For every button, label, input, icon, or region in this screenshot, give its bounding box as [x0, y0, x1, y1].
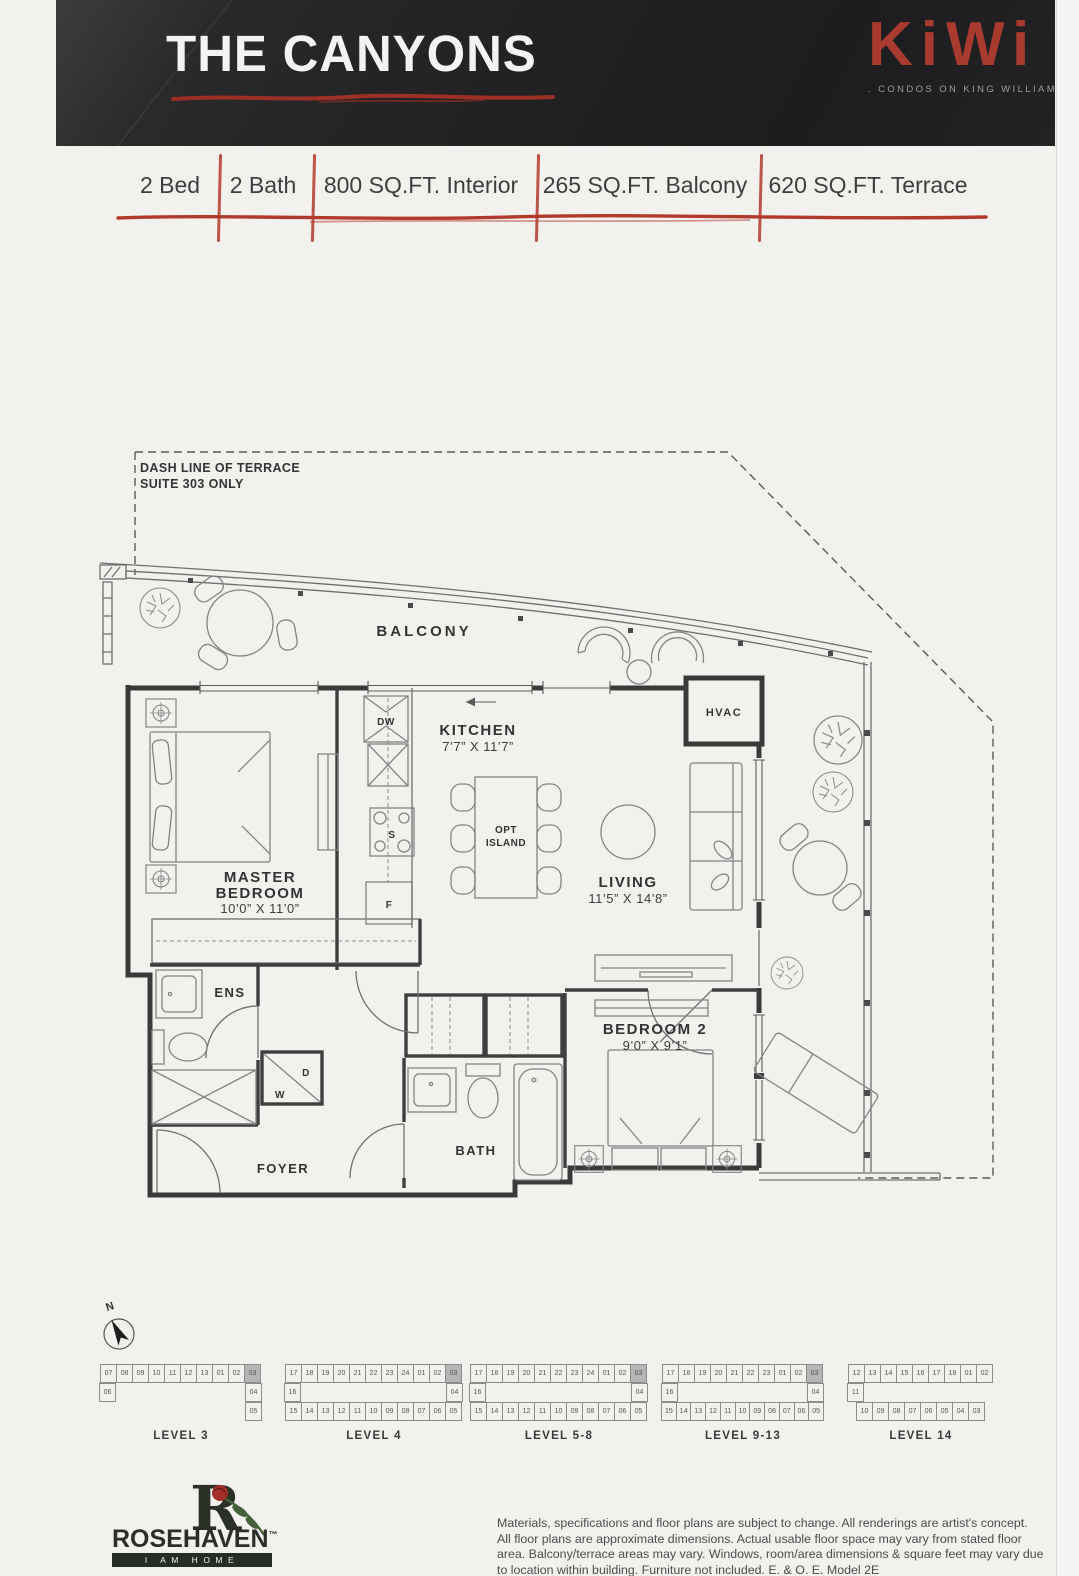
brochure-page: THE CANYONS KiWi . CONDOS ON KING WILLIA… [0, 0, 1079, 1576]
keyplan-unit: 09 [381, 1402, 398, 1421]
keyplan-unit: 15 [470, 1402, 487, 1421]
keyplan-unit: 08 [116, 1364, 133, 1383]
keyplan-unit: 12 [180, 1364, 197, 1383]
keyplan-units: 07080910111213010203060405 [100, 1364, 262, 1421]
keyplan-unit: 01 [413, 1364, 430, 1383]
keyplan-label: LEVEL 4 [285, 1430, 463, 1442]
keyplan-unit: 03 [445, 1364, 462, 1383]
keyplan-unit: 08 [888, 1402, 905, 1421]
keyplan-unit: 16 [284, 1383, 301, 1402]
spec-beds: 2 Bed [140, 172, 200, 199]
keyplan-level-4: 1718192021222324010203160415141312111009… [285, 1364, 463, 1442]
keyplan-unit: 07 [413, 1402, 430, 1421]
keyplan-unit: 05 [445, 1402, 462, 1421]
keyplan-unit: 03 [806, 1364, 823, 1383]
balcony-lounge-chairs [578, 627, 704, 684]
room-label-foyer: FOYER [257, 1161, 309, 1176]
keyplan-unit: 20 [333, 1364, 350, 1383]
keyplan-unit: 02 [228, 1364, 245, 1383]
keyplan-unit: 19 [694, 1364, 711, 1383]
rosehaven-tagline: I AM HOME [112, 1553, 272, 1567]
keyplan-level-5-8: 1718192021222324010203160415141312111009… [470, 1364, 648, 1442]
keyplan-unit: 06 [99, 1383, 116, 1402]
keyplan-unit: 21 [534, 1364, 551, 1383]
keyplan-unit: 12 [333, 1402, 350, 1421]
keyplan-units: 1718192021222324010203160415141312111009… [285, 1364, 463, 1421]
keyplan-unit: 10 [856, 1402, 873, 1421]
keyplan-unit: 22 [742, 1364, 759, 1383]
keyplan-unit: 15 [896, 1364, 913, 1383]
keyplan-unit: 11 [720, 1402, 736, 1421]
keyplan-unit: 13 [864, 1364, 881, 1383]
keyplan-unit: 14 [301, 1402, 318, 1421]
master-bedroom-furniture [150, 732, 338, 862]
room-label-ens: ENS [214, 985, 245, 1000]
keyplan-unit: 02 [614, 1364, 631, 1383]
page-title: THE CANYONS [166, 24, 537, 83]
room-dims-master: 10’0” X 11’0” [220, 901, 299, 916]
keyplan-unit: 09 [566, 1402, 583, 1421]
keyplan-unit: 17 [662, 1364, 679, 1383]
keyplan-unit: 04 [952, 1402, 969, 1421]
keyplan-unit: 01 [212, 1364, 229, 1383]
keyplan-unit: 12 [848, 1364, 865, 1383]
room-dims-living: 11’5” X 14’8” [588, 891, 667, 906]
keyplan-unit: 11 [349, 1402, 366, 1421]
interior-walls [150, 688, 759, 1188]
tree-icon [140, 588, 180, 628]
disclaimer-line: area. Balcony/terrace areas may vary. Wi… [497, 1547, 1057, 1563]
room-label-master2: BEDROOM [216, 885, 305, 902]
room-label-hvac: HVAC [706, 707, 742, 719]
keyplan-unit: 15 [285, 1402, 302, 1421]
keyplan-unit: 13 [196, 1364, 213, 1383]
keyplan-unit: 17 [928, 1364, 945, 1383]
keyplan-unit: 18 [678, 1364, 695, 1383]
disclaimer-line: to location within building. Furniture n… [497, 1563, 1057, 1576]
keyplan-unit: 24 [582, 1364, 599, 1383]
keyplan-unit: 12 [705, 1402, 721, 1421]
keyplan-unit: 24 [397, 1364, 414, 1383]
bath-fixtures [408, 1064, 562, 1180]
keyplan-unit: 05 [936, 1402, 953, 1421]
floor-plan: DASH LINE OF TERRACE SUITE 303 ONLY BALC… [0, 430, 1079, 1262]
header-banner: THE CANYONS KiWi . CONDOS ON KING WILLIA… [56, 0, 1055, 146]
keyplan-unit: 14 [880, 1364, 897, 1383]
keyplan-unit: 04 [245, 1383, 262, 1402]
disclaimer-line: All floor plans are approximate dimensio… [497, 1532, 1057, 1548]
washer-dryer [264, 1054, 320, 1102]
keyplan-unit: 22 [550, 1364, 567, 1383]
keyplan-unit: 09 [749, 1402, 765, 1421]
fridge-label: F [386, 900, 393, 911]
north-arrow: N [92, 1294, 152, 1358]
keyplan-unit: 03 [630, 1364, 647, 1383]
rosehaven-tm: ™ [269, 1530, 278, 1540]
spec-bar: 2 Bed 2 Bath 800 SQ.FT. Interior 265 SQ.… [0, 146, 1079, 256]
keyplan-unit: 11 [164, 1364, 181, 1383]
keyplan-unit: 22 [365, 1364, 382, 1383]
tree-icon [813, 772, 853, 812]
keyplan-unit: 18 [301, 1364, 318, 1383]
keyplan-unit: 10 [550, 1402, 567, 1421]
keyplan-level-3: 07080910111213010203060405 LEVEL 3 [100, 1364, 262, 1442]
north-label: N [104, 1300, 115, 1314]
keyplan-unit: 16 [661, 1383, 678, 1402]
island-label-line2: ISLAND [486, 838, 526, 849]
spec-underline-scribble [110, 206, 1000, 230]
keyplan-unit: 13 [317, 1402, 334, 1421]
keyplan-unit: 11 [847, 1383, 864, 1402]
keyplan-unit: 17 [285, 1364, 302, 1383]
keyplan-unit: 19 [502, 1364, 519, 1383]
keyplan-unit: 08 [582, 1402, 599, 1421]
keyplan-unit: 08 [397, 1402, 414, 1421]
keyplan-unit: 08 [764, 1402, 780, 1421]
nightstand-lamp [146, 865, 176, 893]
scan-edge-strip [1057, 0, 1079, 1576]
keyplan-unit: 14 [676, 1402, 692, 1421]
keyplan-unit: 05 [808, 1402, 824, 1421]
room-label-kitchen: KITCHEN [439, 722, 516, 739]
keyplan-unit: 04 [446, 1383, 463, 1402]
kiwi-tagline: . CONDOS ON KING WILLIAM [868, 84, 1079, 95]
keyplan-units: 121314151617180102111009080706050403 [848, 1364, 994, 1421]
keyplan-label: LEVEL 5-8 [470, 1430, 648, 1442]
keyplan-level-14: 121314151617180102111009080706050403 LEV… [848, 1364, 994, 1442]
living-furniture [595, 763, 742, 981]
keyplan-unit: 03 [244, 1364, 261, 1383]
room-dims-kitchen: 7’7” X 11’7” [442, 739, 514, 754]
keyplan-unit: 01 [598, 1364, 615, 1383]
keyplan-unit: 19 [317, 1364, 334, 1383]
keyplan-unit: 21 [349, 1364, 366, 1383]
terrace-note-line2: SUITE 303 ONLY [140, 477, 244, 491]
keyplan-unit: 01 [960, 1364, 977, 1383]
keyplan-unit: 12 [518, 1402, 535, 1421]
keyplan-unit: 02 [429, 1364, 446, 1383]
keyplan-unit: 05 [630, 1402, 647, 1421]
nightstand-lamp [146, 699, 176, 727]
keyplan-unit: 07 [904, 1402, 921, 1421]
kiwi-logo: KiWi . CONDOS ON KING WILLIAM [868, 12, 1079, 95]
keyplan-unit: 03 [968, 1402, 985, 1421]
disclaimer-line: Materials, specifications and floor plan… [497, 1516, 1057, 1532]
title-underline-scribble [169, 90, 564, 106]
keyplan-unit: 20 [518, 1364, 535, 1383]
room-label-living: LIVING [598, 874, 657, 891]
kiwi-wordmark: KiWi [868, 12, 1079, 78]
keyplan-unit: 07 [598, 1402, 615, 1421]
spec-baths: 2 Bath [230, 172, 297, 199]
keyplan-unit: 15 [661, 1402, 677, 1421]
terrace-note-line1: DASH LINE OF TERRACE [140, 461, 300, 475]
dishwasher-label: DW [377, 717, 395, 728]
keyplan-unit: 05 [245, 1402, 262, 1421]
keyplan-unit: 06 [614, 1402, 631, 1421]
stove-label: S [388, 830, 395, 841]
keyplan-units: 1718192021222301020316041514131211100908… [662, 1364, 824, 1421]
keyplan-unit: 02 [790, 1364, 807, 1383]
keyplan-unit: 13 [690, 1402, 706, 1421]
keyplan-unit: 13 [502, 1402, 519, 1421]
spec-interior: 800 SQ.FT. Interior [324, 172, 518, 199]
rosehaven-name: ROSEHAVEN [112, 1525, 269, 1553]
rosehaven-wordmark: ROSEHAVEN™ [112, 1525, 272, 1554]
dryer-label: D [302, 1068, 310, 1079]
keyplan-level-9-13: 1718192021222301020316041514131211100908… [662, 1364, 824, 1442]
keyplan-unit: 07 [100, 1364, 117, 1383]
exterior-walls [128, 678, 762, 1195]
tree-icon [814, 716, 862, 764]
keyplan-unit: 18 [486, 1364, 503, 1383]
keyplan-label: LEVEL 3 [100, 1430, 262, 1442]
keyplan-unit: 18 [944, 1364, 961, 1383]
keyplan-unit: 14 [486, 1402, 503, 1421]
keyplan-unit: 07 [779, 1402, 795, 1421]
spec-terrace: 620 SQ.FT. Terrace [769, 172, 968, 199]
keyplan-unit: 20 [710, 1364, 727, 1383]
keyplan-unit: 10 [365, 1402, 382, 1421]
keyplan-unit: 10 [148, 1364, 165, 1383]
keyplan-unit: 06 [429, 1402, 446, 1421]
tree-icon [771, 957, 803, 989]
keyplan-unit: 23 [758, 1364, 775, 1383]
keyplan-unit: 23 [566, 1364, 583, 1383]
keyplan-unit: 16 [469, 1383, 486, 1402]
keyplan-unit: 21 [726, 1364, 743, 1383]
keyplan-units: 1718192021222324010203160415141312111009… [470, 1364, 648, 1421]
keyplan-unit: 02 [976, 1364, 993, 1383]
keyplan-label: LEVEL 14 [848, 1430, 994, 1442]
keyplan-unit: 09 [872, 1402, 889, 1421]
keyplan-unit: 06 [920, 1402, 937, 1421]
keyplan-unit: 16 [912, 1364, 929, 1383]
room-label-master1: MASTER [224, 869, 296, 886]
keyplan-unit: 09 [132, 1364, 149, 1383]
keyplan-unit: 04 [631, 1383, 648, 1402]
keyplan-unit: 17 [470, 1364, 487, 1383]
room-label-bath: BATH [455, 1143, 496, 1158]
spec-balcony: 265 SQ.FT. Balcony [543, 172, 748, 199]
keyplan-unit: 04 [807, 1383, 824, 1402]
doors [157, 971, 712, 1193]
keyplan-unit: 06 [794, 1402, 810, 1421]
keyplan-unit: 23 [381, 1364, 398, 1383]
keyplan-unit: 10 [735, 1402, 751, 1421]
room-dims-bedroom2: 9’0” X 9’1” [623, 1038, 688, 1053]
room-label-bedroom2: BEDROOM 2 [603, 1021, 707, 1038]
keyplan-label: LEVEL 9-13 [662, 1430, 824, 1442]
island-label-line1: OPT [495, 825, 517, 836]
room-label-balcony: BALCONY [376, 623, 471, 640]
keyplan-unit: 01 [774, 1364, 791, 1383]
washer-label: W [275, 1090, 285, 1101]
disclaimer-text: Materials, specifications and floor plan… [497, 1516, 1057, 1576]
keyplan-unit: 11 [534, 1402, 551, 1421]
